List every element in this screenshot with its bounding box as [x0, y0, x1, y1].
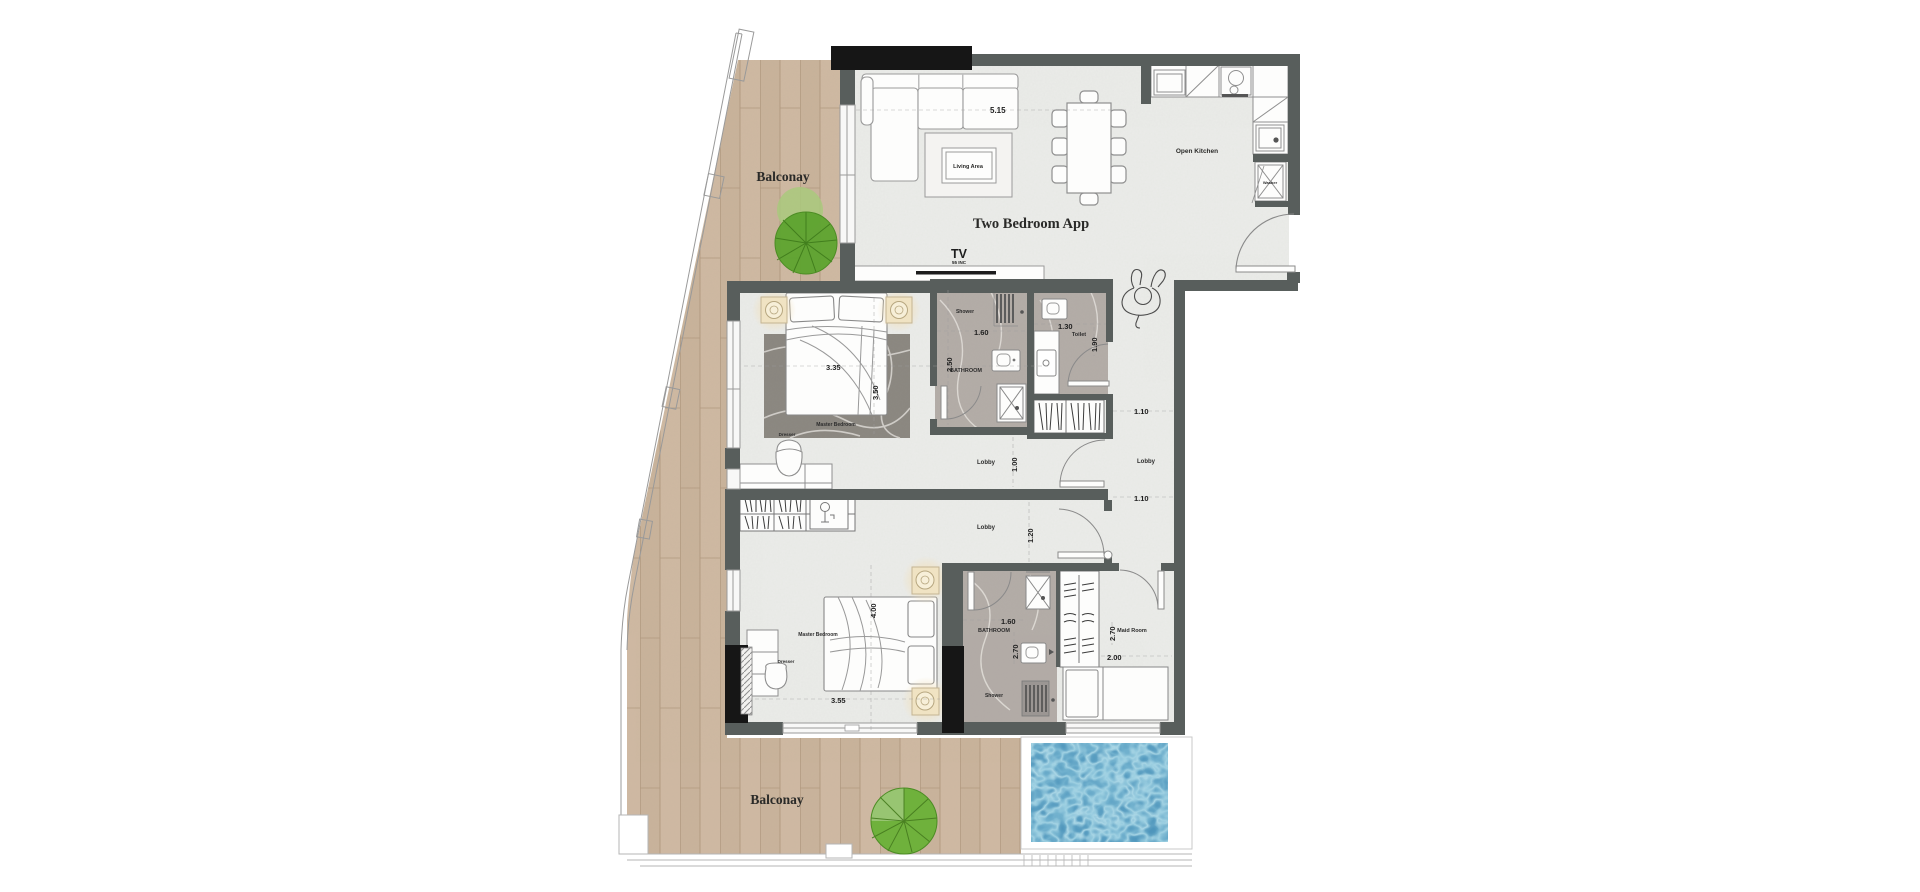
svg-text:1.10: 1.10 — [1134, 407, 1149, 416]
svg-text:Shower: Shower — [985, 693, 1003, 699]
svg-text:Master Bedroom: Master Bedroom — [798, 632, 838, 638]
svg-text:1.20: 1.20 — [1026, 528, 1035, 543]
svg-text:3.55: 3.55 — [831, 696, 846, 705]
svg-text:55 INC: 55 INC — [952, 260, 967, 265]
svg-text:Washer: Washer — [1263, 180, 1278, 185]
svg-text:5.15: 5.15 — [990, 106, 1006, 115]
svg-text:Open Kitchen: Open Kitchen — [1176, 148, 1218, 155]
svg-text:Shower: Shower — [956, 309, 974, 315]
svg-text:1.30: 1.30 — [1058, 322, 1073, 331]
svg-text:3.35: 3.35 — [826, 363, 841, 372]
svg-text:Dresser: Dresser — [778, 659, 795, 664]
svg-text:1.60: 1.60 — [974, 328, 989, 337]
svg-text:Lobby: Lobby — [977, 460, 996, 466]
svg-text:2.70: 2.70 — [1011, 644, 1020, 659]
svg-text:Two Bedroom App: Two Bedroom App — [973, 216, 1089, 232]
svg-text:BATHROOM: BATHROOM — [978, 628, 1010, 634]
svg-text:1.10: 1.10 — [1134, 494, 1149, 503]
svg-text:2.00: 2.00 — [1107, 653, 1122, 662]
svg-text:1.60: 1.60 — [1001, 617, 1016, 626]
svg-text:2.70: 2.70 — [1108, 626, 1117, 641]
svg-text:TV: TV — [951, 247, 968, 261]
svg-text:Maid Room: Maid Room — [1117, 628, 1147, 634]
svg-text:Living Area: Living Area — [953, 164, 984, 170]
svg-text:Lobby: Lobby — [1137, 459, 1156, 465]
svg-text:Lobby: Lobby — [977, 525, 996, 531]
svg-text:1.90: 1.90 — [1090, 337, 1099, 352]
svg-text:4.00: 4.00 — [869, 603, 878, 618]
svg-text:Toilet: Toilet — [1072, 332, 1086, 338]
svg-text:BATHROOM: BATHROOM — [950, 368, 982, 374]
svg-text:Balconay: Balconay — [756, 169, 810, 184]
svg-text:3.50: 3.50 — [871, 385, 880, 400]
svg-text:1.00: 1.00 — [1010, 457, 1019, 472]
svg-text:Master Bedroom: Master Bedroom — [816, 422, 856, 428]
svg-text:Dresser: Dresser — [779, 432, 796, 437]
svg-text:Balconay: Balconay — [750, 792, 804, 807]
